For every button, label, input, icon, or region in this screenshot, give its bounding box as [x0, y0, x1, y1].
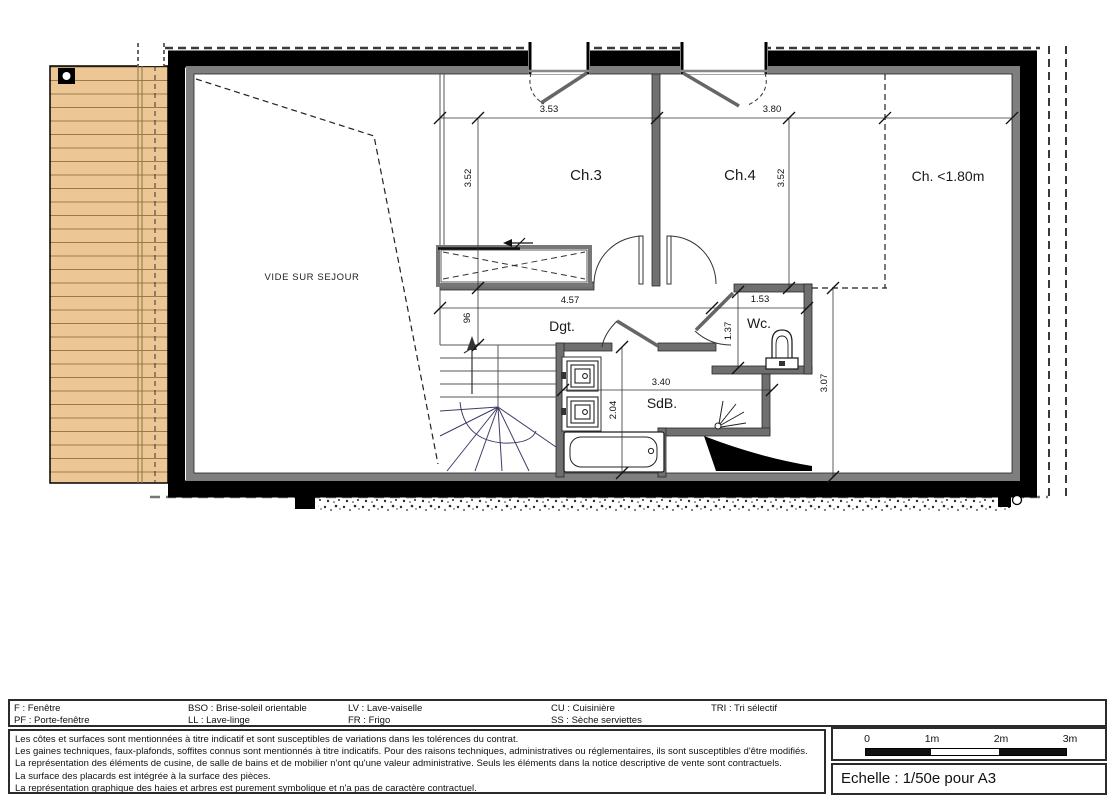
room-label-vide: VIDE SUR SEJOUR [264, 272, 359, 283]
roof-window-1 [528, 42, 590, 104]
deck [50, 66, 168, 483]
legend-item: LV : Lave-vaiselle [348, 703, 422, 715]
note-line: Les côtes et surfaces sont mentionnées à… [15, 734, 819, 746]
room-label-dgt: Dgt. [549, 318, 575, 334]
toilet [766, 330, 798, 369]
legend-item: BSO : Brise-soleil orientable [188, 703, 307, 715]
section-wedge [704, 436, 812, 471]
downspout-marker [1013, 496, 1022, 505]
scalebar-graphic [865, 748, 1067, 756]
dim-dgt-depth: 96 [462, 313, 473, 324]
dim-sdb-width: 3.40 [652, 377, 671, 388]
dim-ch4-width: 3.80 [763, 104, 782, 115]
legend-item: F : Fenêtre [14, 703, 90, 715]
bottom-wall-stub [295, 488, 315, 509]
note-line: La surface des placards est intégrée à l… [15, 771, 819, 783]
scalebar-tick-3m: 3m [1063, 733, 1078, 745]
corner-stub [998, 489, 1011, 507]
legend-col-4: CU : Cuisinière SS : Sèche serviettes [551, 703, 642, 726]
legend-col-2: BSO : Brise-soleil orientable LL : Lave-… [188, 703, 307, 726]
scalebar-tick-2m: 2m [994, 733, 1009, 745]
legend-item: SS : Sèche serviettes [551, 715, 642, 727]
closet [438, 238, 590, 285]
bathtub [564, 432, 664, 472]
scale-caption: Echelle : 1/50e pour A3 [841, 770, 996, 787]
dim-dgt-width: 4.57 [561, 295, 580, 306]
dim-wc-height: 1.37 [723, 322, 734, 341]
door-ch3 [594, 236, 643, 284]
scalebar-box: 0 1m 2m 3m [831, 727, 1107, 761]
scalebar-tick-1m: 1m [925, 733, 940, 745]
dim-sdb-height: 2.04 [608, 401, 619, 420]
room-labels: Ch.3 Ch.4 Ch. <1.80m Dgt. Wc. SdB. VIDE … [264, 167, 984, 411]
shower-head-icon [715, 401, 746, 429]
dim-ch3-height: 3.52 [463, 169, 474, 188]
staircase [440, 336, 556, 471]
note-line: La représentation des éléments de cusine… [15, 758, 819, 770]
legend-col-5: TRI : Tri sélectif [711, 703, 777, 715]
room-label-wc: Wc. [747, 315, 771, 331]
room-label-ch-low: Ch. <1.80m [912, 168, 985, 184]
floor-plan-sheet: 3.53 3.80 3.52 3.52 4.57 1.53 96 1.37 3.… [0, 0, 1115, 800]
legend-item: PF : Porte-fenêtre [14, 715, 90, 727]
dim-wc-width: 1.53 [751, 294, 770, 305]
door-ch4 [667, 236, 716, 284]
legend-item: LL : Lave-linge [188, 715, 307, 727]
note-line: La représentation graphique des haies et… [15, 783, 819, 794]
dim-ch4-height: 3.52 [776, 169, 787, 188]
sink-counter [561, 357, 601, 431]
scalebar-tick-0: 0 [864, 733, 870, 745]
legend-col-1: F : Fenêtre PF : Porte-fenêtre [14, 703, 90, 726]
notes-box: Les côtes et surfaces sont mentionnées à… [8, 729, 826, 794]
chimney-notch [137, 42, 165, 66]
legend-item: CU : Cuisinière [551, 703, 642, 715]
room-label-ch4: Ch.4 [724, 167, 756, 184]
legend-col-3: LV : Lave-vaiselle FR : Frigo [348, 703, 422, 726]
legend-box: F : Fenêtre PF : Porte-fenêtre BSO : Bri… [8, 699, 1107, 727]
room-label-sdb: SdB. [647, 395, 677, 411]
deck-post-icon [58, 68, 75, 84]
note-line: Les gaines techniques, faux-plafonds, so… [15, 746, 819, 758]
floor-plan-drawing: 3.53 3.80 3.52 3.52 4.57 1.53 96 1.37 3.… [0, 0, 1115, 696]
scale-caption-box: Echelle : 1/50e pour A3 [831, 763, 1107, 795]
dim-ch3-width: 3.53 [540, 104, 559, 115]
room-label-ch3: Ch.3 [570, 167, 602, 184]
legend-item: FR : Frigo [348, 715, 422, 727]
legend-item: TRI : Tri sélectif [711, 703, 777, 715]
low-ceiling-boundary [812, 74, 887, 288]
dim-right-zone-height: 3.07 [819, 374, 830, 393]
sink-2 [561, 397, 598, 427]
roof-window-2 [680, 42, 768, 106]
